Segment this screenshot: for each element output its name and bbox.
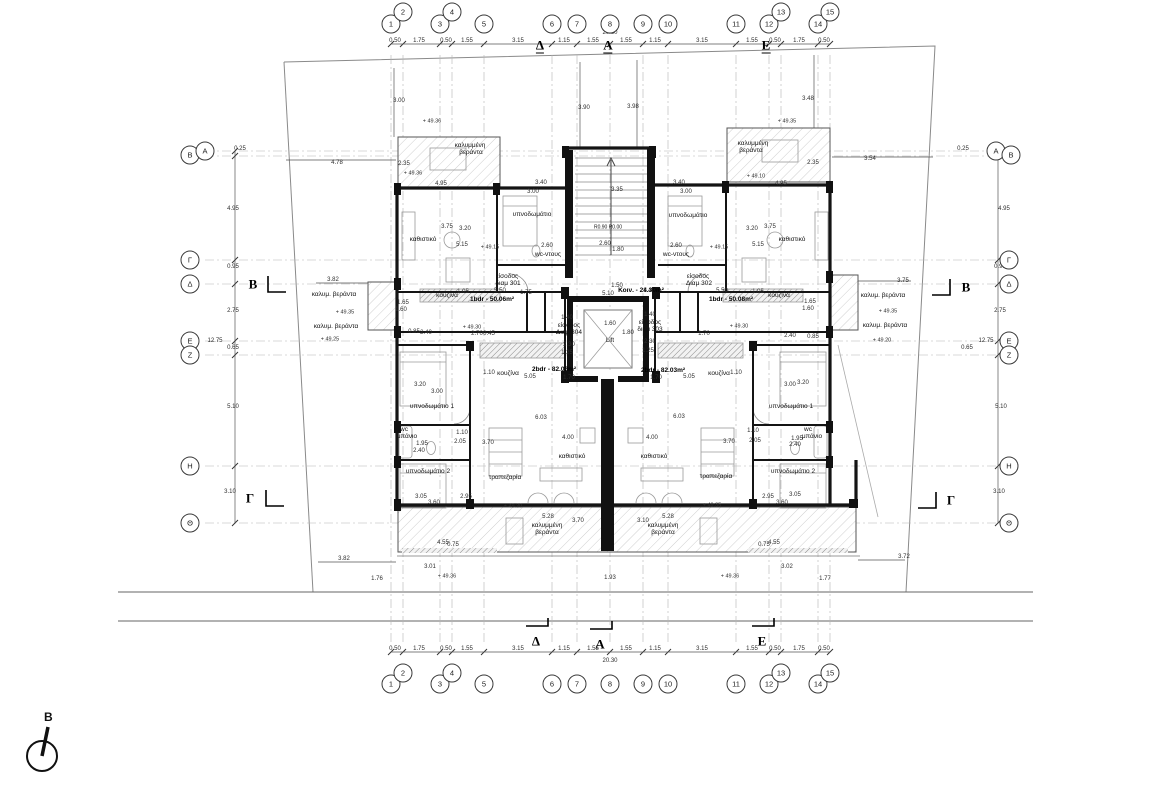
- floor-plan-page: ΔΑΕΔΑΕΒΓΒΓ0.501.750.501.553.151.151.551.…: [0, 0, 1151, 796]
- floor-plan-drawing: [0, 0, 1151, 796]
- north-arrow-label: Β: [44, 710, 53, 724]
- north-arrow: [27, 727, 57, 771]
- shaft-wall: [601, 379, 614, 551]
- road-lines: [118, 592, 1033, 621]
